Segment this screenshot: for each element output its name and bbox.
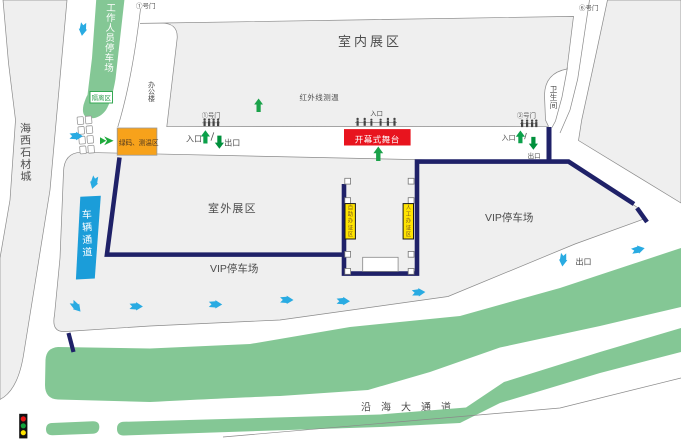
svg-text:证: 证: [406, 224, 412, 231]
svg-text:公: 公: [148, 88, 155, 96]
svg-text:入口: 入口: [186, 134, 202, 143]
svg-text:石: 石: [20, 147, 32, 160]
svg-text:室内展区: 室内展区: [338, 34, 402, 49]
svg-text:办: 办: [348, 217, 354, 225]
svg-text:海: 海: [19, 121, 31, 136]
svg-text:辆: 辆: [82, 220, 93, 234]
svg-text:车: 车: [81, 208, 92, 222]
svg-text:区: 区: [406, 231, 412, 238]
svg-text:区: 区: [348, 231, 354, 238]
svg-text:西: 西: [20, 135, 32, 148]
svg-text:办: 办: [406, 217, 412, 225]
svg-text:证: 证: [348, 224, 354, 231]
svg-text:开幕式舞台: 开幕式舞台: [355, 135, 400, 145]
svg-text:室外展区: 室外展区: [208, 201, 257, 215]
svg-text:VIP停车场: VIP停车场: [210, 262, 258, 275]
svg-text:隔离区: 隔离区: [91, 93, 111, 102]
svg-text:城: 城: [20, 170, 32, 184]
svg-text:VIP停车场: VIP停车场: [485, 211, 533, 224]
svg-text:红外线测温: 红外线测温: [300, 92, 340, 102]
svg-text:①号门: ①号门: [202, 110, 221, 119]
svg-text:间: 间: [550, 101, 558, 110]
svg-text:出口: 出口: [528, 151, 541, 160]
svg-text:①号门: ①号门: [136, 1, 156, 10]
svg-text:人: 人: [406, 205, 412, 212]
svg-text:通: 通: [82, 234, 93, 247]
svg-text:出口: 出口: [576, 257, 592, 267]
svg-text:办: 办: [148, 80, 155, 89]
svg-text:②号门: ②号门: [517, 111, 536, 120]
svg-text:场: 场: [104, 63, 114, 74]
svg-text:自: 自: [348, 204, 353, 212]
svg-text:道: 道: [82, 245, 93, 259]
svg-text:绿码、测温区: 绿码、测温区: [119, 138, 159, 147]
svg-text:出口: 出口: [224, 138, 240, 148]
svg-text:助: 助: [348, 210, 353, 218]
svg-text:楼: 楼: [148, 94, 155, 103]
svg-text:材: 材: [20, 157, 32, 172]
svg-text:工: 工: [406, 211, 412, 218]
svg-text:⑥号门: ⑥号门: [579, 3, 599, 12]
svg-text:入口: 入口: [502, 134, 516, 142]
svg-text:入口: 入口: [370, 109, 383, 117]
